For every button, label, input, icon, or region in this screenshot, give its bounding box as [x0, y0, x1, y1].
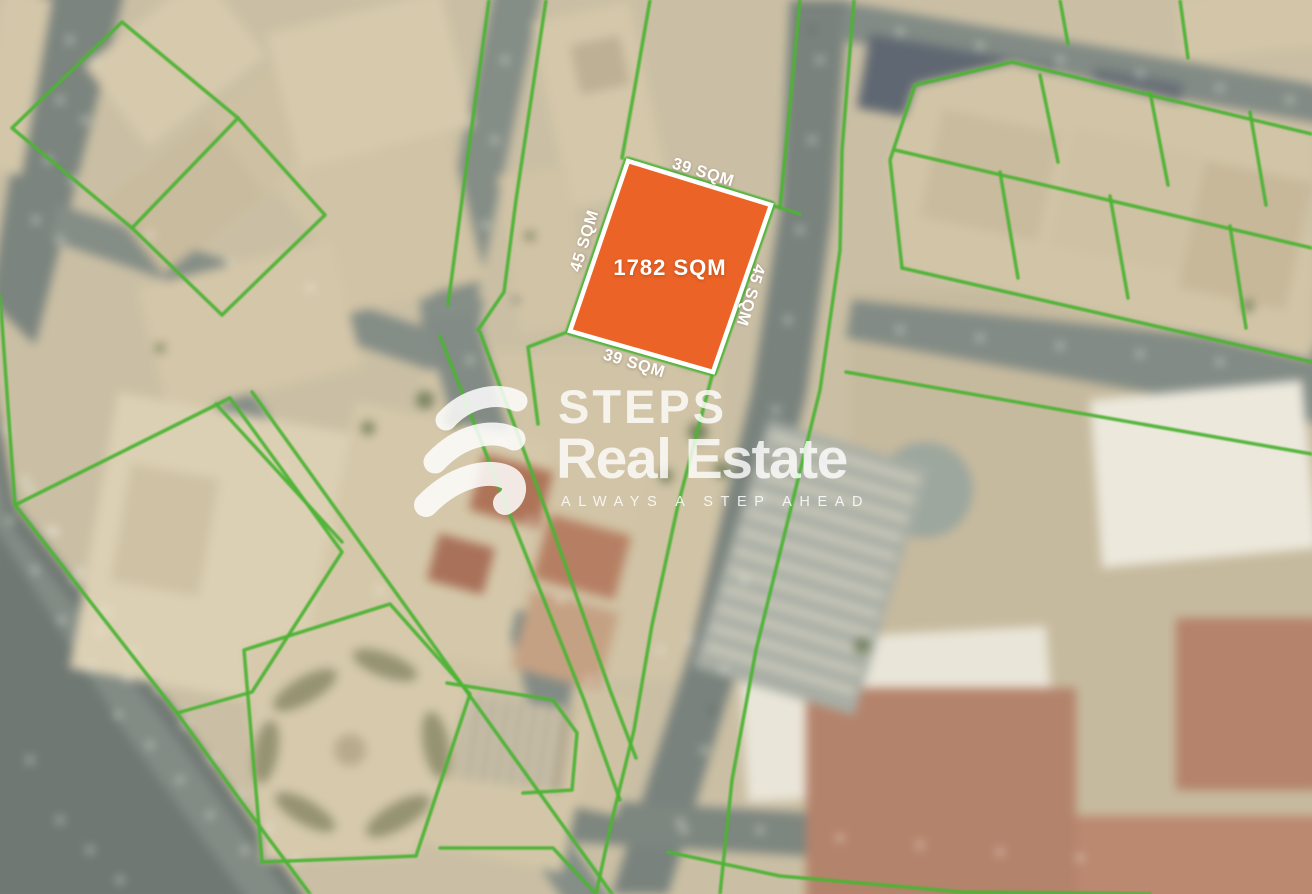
plot-highlight-layer	[0, 0, 1312, 894]
satellite-map-image: 1782 SQM 39 SQM 39 SQM 45 SQM 45 SQM STE…	[0, 0, 1312, 894]
plot-area-label: 1782 SQM	[613, 255, 726, 281]
